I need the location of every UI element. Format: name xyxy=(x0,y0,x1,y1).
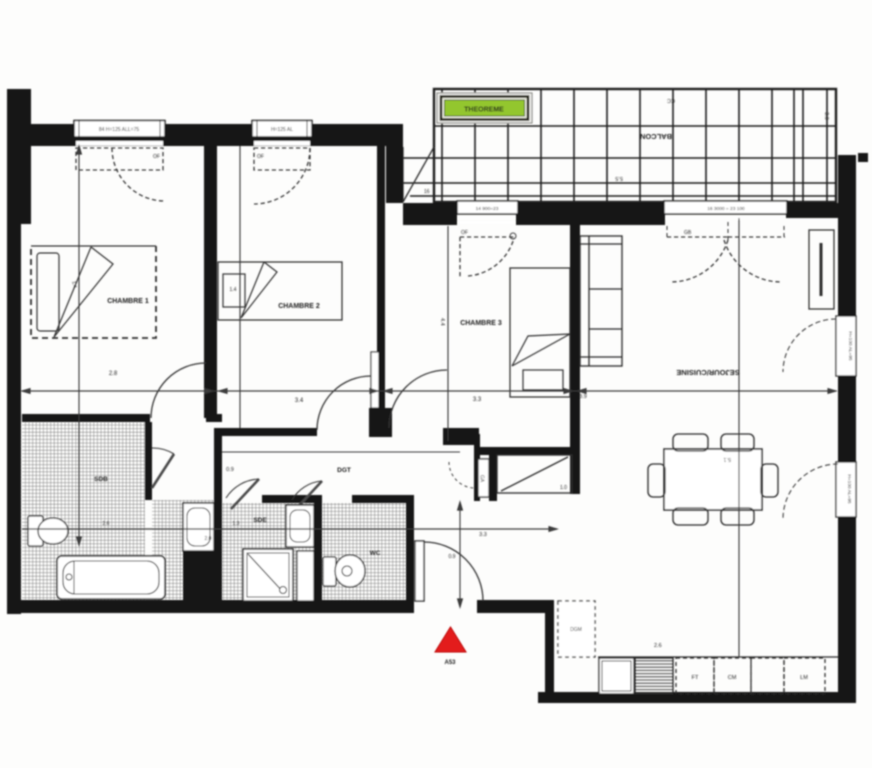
svg-text:5.1: 5.1 xyxy=(723,456,731,462)
svg-text:H=100 AL=95: H=100 AL=95 xyxy=(847,331,853,361)
svg-text:1.3: 1.3 xyxy=(233,521,240,527)
svg-text:SDE: SDE xyxy=(253,517,267,524)
svg-text:4.4: 4.4 xyxy=(439,318,445,326)
svg-text:2.8: 2.8 xyxy=(109,371,118,377)
svg-text:OF: OF xyxy=(257,154,264,160)
svg-text:16: 16 xyxy=(424,189,430,195)
svg-text:CM: CM xyxy=(728,675,737,681)
svg-text:3.4: 3.4 xyxy=(295,398,304,404)
svg-text:THEOREME: THEOREME xyxy=(464,107,504,114)
svg-text:0.9: 0.9 xyxy=(449,554,456,560)
svg-text:2.6: 2.6 xyxy=(654,643,662,649)
svg-text:FT: FT xyxy=(692,675,699,681)
svg-text:3.3: 3.3 xyxy=(473,397,482,403)
svg-text:1.4: 1.4 xyxy=(230,287,237,293)
svg-text:OF: OF xyxy=(461,230,468,236)
svg-text:16 3000 = 23 100: 16 3000 = 23 100 xyxy=(707,206,745,212)
svg-text:LM: LM xyxy=(800,675,808,681)
svg-text:CC: CC xyxy=(667,97,675,103)
svg-text:DGT: DGT xyxy=(337,467,351,474)
svg-text:3.3: 3.3 xyxy=(479,532,487,538)
svg-text:0.9: 0.9 xyxy=(226,467,234,473)
svg-text:5.5: 5.5 xyxy=(615,175,623,181)
svg-text:H=100 AL=95: H=100 AL=95 xyxy=(846,474,852,504)
svg-text:DGM: DGM xyxy=(570,627,582,633)
svg-text:CHAMBRE 1: CHAMBRE 1 xyxy=(107,298,149,305)
svg-text:A53: A53 xyxy=(444,660,456,666)
svg-text:2.0: 2.0 xyxy=(205,536,212,542)
svg-text:SDB: SDB xyxy=(94,476,108,483)
svg-text:CHAMBRE 3: CHAMBRE 3 xyxy=(460,320,502,327)
svg-text:GB: GB xyxy=(684,230,692,236)
svg-text:CHAMBRE 2: CHAMBRE 2 xyxy=(278,303,320,310)
svg-text:2.6: 2.6 xyxy=(103,521,110,527)
svg-text:1.0: 1.0 xyxy=(560,485,567,491)
svg-text:3.0: 3.0 xyxy=(823,112,829,120)
svg-text:OF: OF xyxy=(153,154,160,160)
svg-text:3.9: 3.9 xyxy=(579,394,587,400)
svg-text:SEJOUR/CUISINE: SEJOUR/CUISINE xyxy=(676,368,739,377)
svg-text:BALCON: BALCON xyxy=(640,132,672,141)
svg-text:H=125 AL: H=125 AL xyxy=(271,127,293,133)
svg-text:GA: GA xyxy=(479,475,485,483)
svg-text:84 H=125 ALL=75: 84 H=125 ALL=75 xyxy=(99,127,140,133)
svg-text:14 900=23: 14 900=23 xyxy=(476,206,499,212)
svg-text:WC: WC xyxy=(370,550,381,557)
